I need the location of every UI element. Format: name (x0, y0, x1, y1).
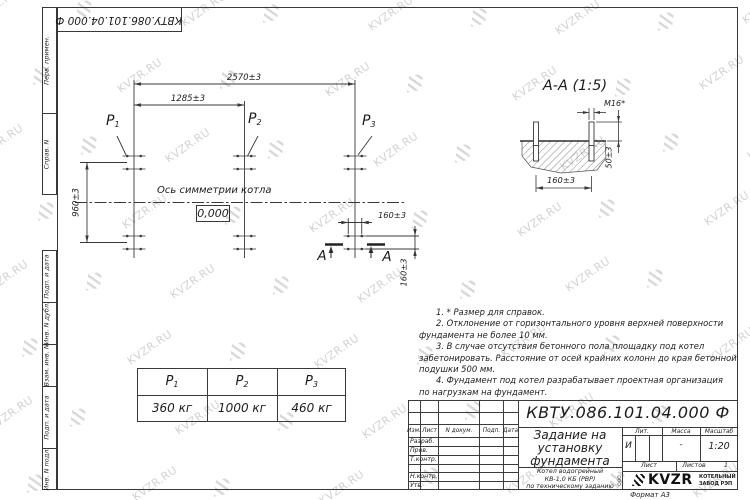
plan-dimension-lines (80, 80, 419, 259)
title-block-line (438, 400, 439, 490)
load-value-p1: 360 кг (137, 402, 207, 415)
title-block-line (649, 435, 650, 461)
company-tagline-1: КОТЕЛЬНЫЙ (699, 475, 736, 481)
title-block-line (479, 400, 480, 490)
scale-label: Масштаб (701, 429, 737, 436)
title-block-line (635, 435, 636, 461)
sheet-label: Лист (630, 463, 668, 470)
col-izm: Изм. (407, 428, 421, 434)
col-podp: Подп. (480, 428, 503, 434)
sheets-label: Листов (680, 463, 708, 470)
p2-sub: 2 (256, 118, 261, 127)
title-block-line (408, 424, 518, 425)
load-table-header-p1: P1 (137, 375, 207, 390)
sheets-value: 1 (720, 463, 732, 470)
watermark-text: KVZR.RU (0, 393, 36, 433)
company-tagline-2: ЗАВОД РЭП (699, 482, 732, 488)
title-block-line (503, 400, 504, 490)
note-line: 1. * Размер для справок. (419, 307, 737, 318)
section-dim-height: 50±3 (606, 140, 619, 176)
side-column-sprav-n: Справ. N (43, 118, 56, 192)
doc-subtitle-line1: Котел водогрейный (518, 469, 622, 476)
title-block-line (408, 412, 518, 413)
watermark-text: KVZR.RU (745, 122, 750, 162)
symmetry-axis-label: Ось симметрии котла (157, 185, 272, 196)
side-column-divider (42, 113, 57, 114)
note-line: 4. Фундамент под котел разрабатывает про… (419, 375, 737, 386)
company-name: KVZR (648, 473, 693, 488)
load-table-header-p3: P3 (277, 375, 346, 390)
drawing-sheet: KVZR.RUKVZR.RUKVZR.RUKVZR.RUKVZR.RUKVZR.… (0, 0, 750, 500)
dim-half-width: 1285±3 (158, 95, 218, 104)
title-block-line (408, 464, 518, 465)
note-line: подушки 500 мм. (419, 364, 737, 375)
dim-bolt-spacing-h: 160±3 (368, 211, 416, 220)
mass-value: - (666, 441, 696, 451)
load-value-p2: 1000 кг (207, 402, 277, 415)
doc-title-line3: фундамента (518, 455, 622, 468)
title-block-line (676, 461, 677, 471)
note-line: 3. В случае отсутствия бетонного пола пл… (419, 341, 737, 352)
note-line: 2. Отклонение от горизонтального уровня … (419, 318, 737, 329)
p3-sub: 3 (370, 120, 375, 129)
row-utv: Утв. (410, 483, 423, 490)
side-column-inv-dubl: Инв. N дубл. (43, 302, 56, 344)
side-column-podp-data-2: Подп. и дата (43, 386, 56, 448)
section-dim-width: 160±3 (537, 176, 585, 185)
load-table-divider (137, 395, 346, 396)
p3-sub: 3 (313, 380, 318, 389)
watermark-text: KVZR.RU (0, 121, 26, 161)
lit-label: Лит. (626, 429, 658, 436)
title-block-line (408, 481, 518, 482)
dim-bolt-spacing-v: 160±3 (400, 249, 413, 297)
p2-sub: 2 (243, 380, 248, 389)
dim-total-width: 2570±3 (214, 74, 274, 83)
row-nkontr: Н.контр. (410, 474, 438, 481)
p3-base: P (305, 374, 313, 389)
load-point-label-p2: P2 (248, 112, 262, 128)
load-point-label-p1: P1 (106, 114, 120, 130)
bolt-thread-label: M16* (604, 100, 625, 109)
doc-subtitle-line3: по техническому заданию (518, 484, 622, 491)
side-column-perv-primen: Перв. примен. (43, 16, 56, 106)
load-table-header-p2: P2 (207, 375, 277, 390)
p1-sub: 1 (173, 380, 178, 389)
company-ooo: ООО (619, 474, 630, 487)
watermark-text: KVZR.RU (0, 257, 31, 297)
watermark-text: KVZR.RU (740, 0, 750, 27)
col-n-dokum: N докум. (439, 428, 479, 434)
row-tkontr: Т.контр. (410, 457, 437, 464)
dim-depth: 960±3 (73, 179, 86, 227)
level-mark: 0,000 (196, 205, 230, 223)
side-column-podp-data-1: Подп. и дата (43, 250, 56, 302)
watermark-text: KVZR.RU (0, 0, 21, 26)
p1-sub: 1 (114, 120, 119, 129)
row-prov: Пров. (410, 448, 428, 455)
load-value-p3: 460 кг (277, 402, 346, 415)
kvzr-stripes-watermark-icon (35, 201, 58, 221)
load-point-label-p3: P3 (362, 114, 376, 130)
mass-label: Масса (664, 429, 698, 436)
note-line: по нагрузкам на фундамент. (419, 387, 737, 398)
row-razrab: Разраб. (410, 439, 434, 446)
technical-notes: 1. * Размер для справок. 2. Отклонение о… (419, 307, 737, 398)
rotated-doc-number: КВТУ.086.101.04.000 Ф (57, 7, 182, 32)
note-line: забетонировать. Расстояние от осей крайн… (419, 353, 737, 364)
section-title: А-А (1:5) (530, 79, 620, 95)
format-label: Формат А3 (620, 492, 680, 500)
title-block-line (622, 435, 738, 436)
doc-number: КВТУ.086.101.04.000 Ф (518, 404, 738, 422)
lit-value: И (622, 442, 635, 452)
side-column-inv-podl: Инв. N подл. (43, 448, 56, 490)
side-column-vzam-inv: Взам. инв. N (43, 344, 56, 386)
note-line: фундамента не более 10 мм. (419, 330, 737, 341)
section-letter-left: А (315, 249, 329, 264)
col-list: Лист (421, 428, 438, 434)
section-letter-right: А (380, 250, 394, 265)
title-block-line (662, 427, 663, 461)
kvzr-stripes-watermark-icon (19, 337, 42, 357)
col-data: Дата (503, 428, 518, 434)
scale-value: 1:20 (702, 442, 736, 452)
